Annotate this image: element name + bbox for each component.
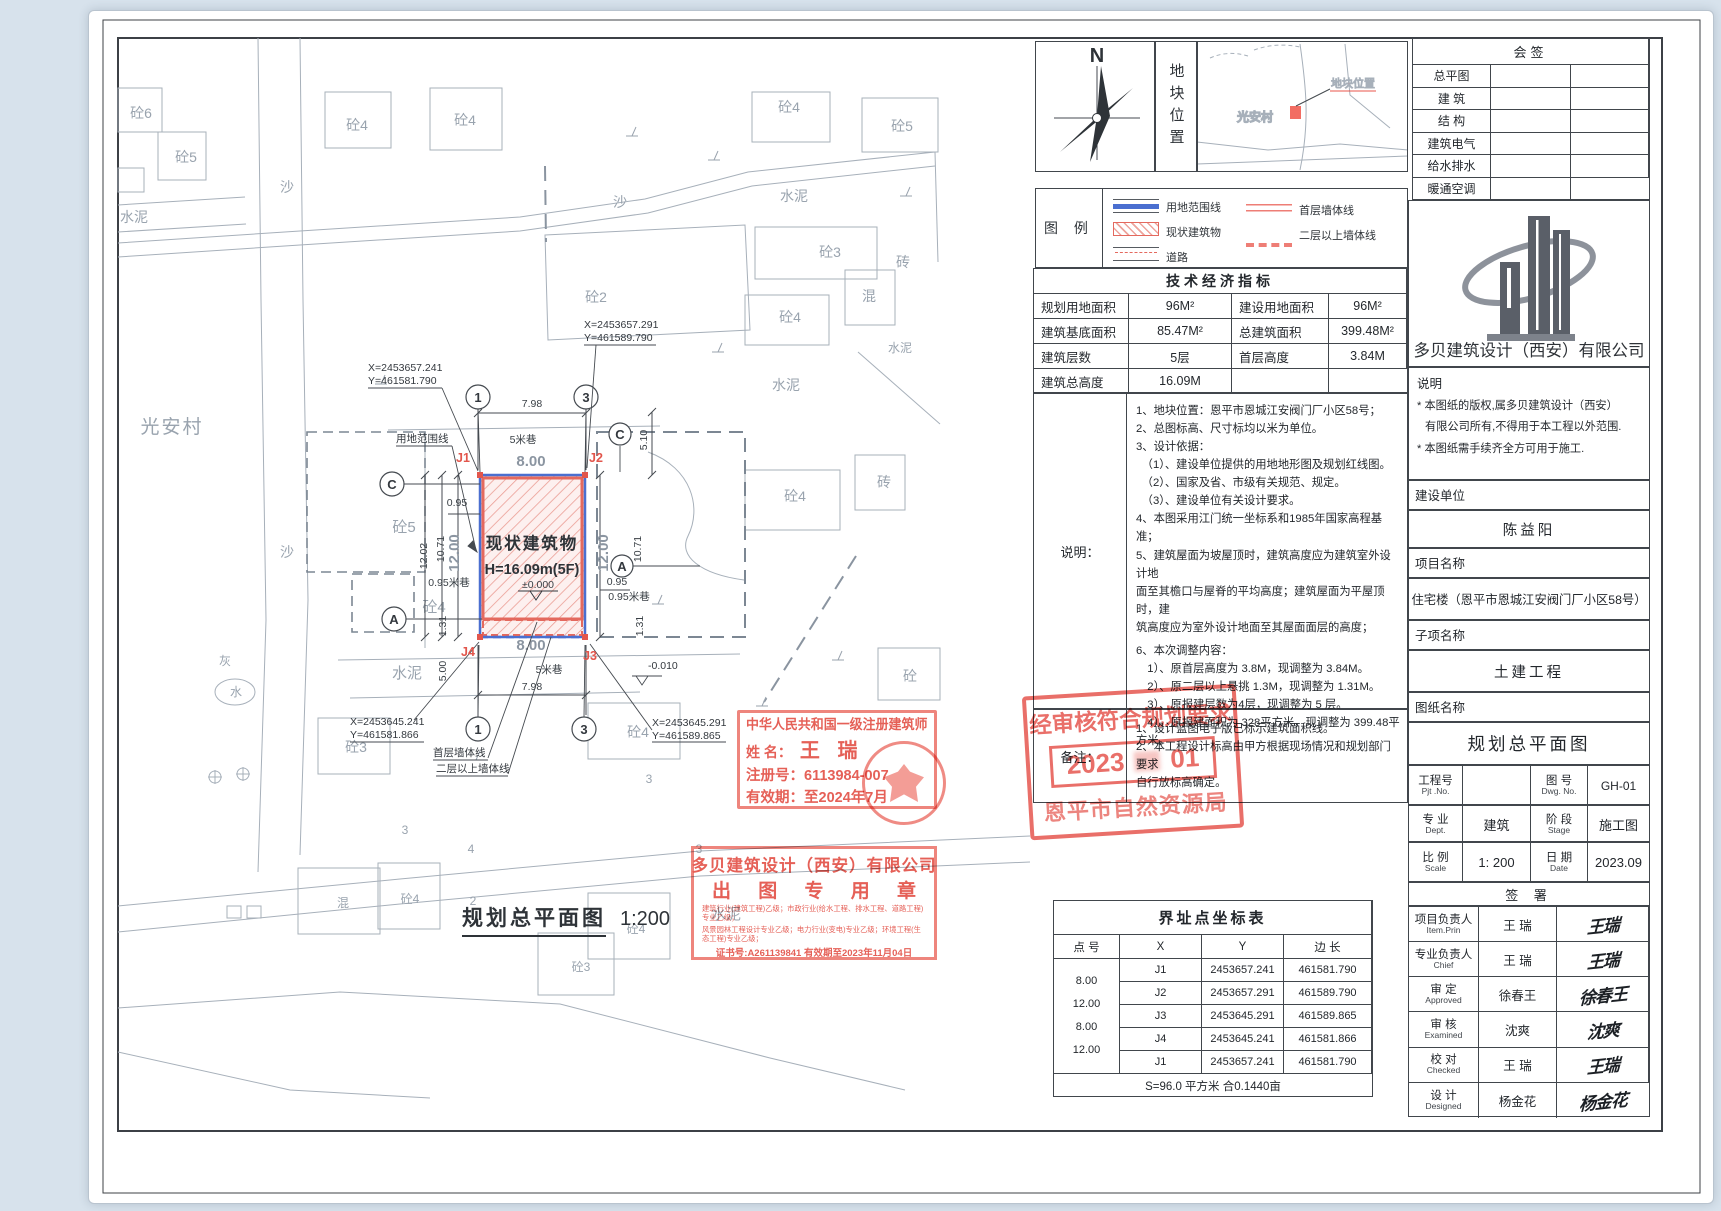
signoff-cell bbox=[1491, 133, 1571, 156]
stage-label: 阶 段 bbox=[1546, 814, 1572, 826]
point-j2: J2 bbox=[589, 451, 603, 465]
signer-name: 杨金花 bbox=[1479, 1083, 1557, 1118]
legend-item-first-wall: 首层墙体线 bbox=[1299, 202, 1354, 218]
indicators-table: 技术经济指标 规划用地面积 96M² 建设用地面积 96M² 建筑基底面积 85… bbox=[1033, 268, 1408, 393]
dim-500-left: 5.00 bbox=[437, 661, 449, 682]
context-label: 灰 bbox=[219, 654, 231, 668]
seal-qualification-line: 建筑行业(建筑工程)乙级；市政行业(给水工程、排水工程、道路工程)专业乙级； bbox=[696, 903, 932, 924]
context-label: 砖 bbox=[877, 474, 891, 490]
date-label-cell: 日 期Date bbox=[1531, 843, 1588, 882]
coord-y: 461581.790 bbox=[1284, 1051, 1372, 1074]
stage-label-cell: 阶 段Stage bbox=[1531, 806, 1588, 842]
coord-bl-y: Y=461581.866 bbox=[350, 729, 419, 741]
page-background: 砼6 砼5 水泥 沙 砼4 砼4 沙 砼4 砼5 水泥 砼3 砼2 砼4 混 砖… bbox=[0, 0, 1721, 1211]
signer-role-cell: 设 计Designed bbox=[1409, 1083, 1479, 1118]
legend-swatch-road bbox=[1113, 247, 1159, 261]
signer-role-cell: 项目负责人Item.Prin bbox=[1409, 907, 1479, 942]
context-label: 水 bbox=[230, 685, 242, 699]
signer-name: 沈爽 bbox=[1479, 1012, 1557, 1047]
note-line: 4、本图采用江门统一坐标系和1985年国家高程基准； bbox=[1136, 510, 1401, 546]
indicators-title: 技术经济指标 bbox=[1034, 269, 1407, 294]
seal-purpose: 出 图 专 用 章 bbox=[701, 876, 927, 903]
signer-signature-cell: 王瑞 bbox=[1557, 942, 1649, 977]
client-value: 陈益阳 bbox=[1408, 510, 1650, 548]
lane-label-top: 5米巷 bbox=[510, 433, 537, 446]
context-label: 4 bbox=[468, 842, 475, 856]
pjt-no-label-cell: 工程号Pjt .No. bbox=[1409, 766, 1463, 805]
indicator-label bbox=[1232, 369, 1329, 393]
date-label-en: Date bbox=[1550, 864, 1568, 873]
indicator-label: 规划用地面积 bbox=[1034, 294, 1129, 319]
note-line: 1、地块位置：恩平市恩城江安阀门厂小区58号； bbox=[1136, 402, 1401, 420]
axis-3-bottom: 3 bbox=[580, 722, 587, 737]
subproject-value: 土建工程 bbox=[1408, 650, 1650, 692]
callout-boundary: 用地范围线 bbox=[396, 432, 449, 445]
signature-scribble: 王瑞 bbox=[1586, 910, 1619, 939]
note-line: （2）、国家及省、市级有关规范、规定。 bbox=[1136, 474, 1401, 492]
scale-value: 1: 200 bbox=[1463, 843, 1531, 882]
dim-1071-right: 10.71 bbox=[632, 536, 644, 562]
axis-3-top: 3 bbox=[582, 390, 589, 405]
context-label: 沙 bbox=[613, 194, 627, 210]
legend-divider bbox=[1102, 189, 1103, 267]
signoff-row-label: 建筑电气 bbox=[1413, 133, 1491, 156]
legend-swatch-boundary bbox=[1113, 199, 1159, 213]
client-label: 建设单位 bbox=[1408, 480, 1650, 510]
context-label: 水泥 bbox=[780, 188, 808, 204]
signer-role-cell: 专业负责人Chief bbox=[1409, 942, 1479, 977]
dim-131-right: 1.31 bbox=[634, 616, 646, 637]
signer-role: 专业负责人 bbox=[1415, 949, 1473, 961]
axis-c-left: C bbox=[387, 477, 397, 492]
signature-scribble: 王瑞 bbox=[1586, 945, 1619, 974]
context-label-village: 光安村 bbox=[140, 416, 203, 438]
edge-length: 12.00 bbox=[1054, 1044, 1119, 1056]
coord-point: J4 bbox=[1120, 1028, 1202, 1051]
coord-br-y: Y=461589.865 bbox=[652, 730, 721, 742]
seal-certificate-no: 证书号:A261139841 有效期至2023年11月04日 bbox=[716, 945, 912, 959]
signer-name: 王 瑞 bbox=[1479, 942, 1557, 977]
coord-y: 461589.865 bbox=[1284, 1005, 1372, 1028]
coordinate-table: 界址点坐标表 点 号 X Y 边 长 J1 2453657.241 461581… bbox=[1053, 900, 1373, 1097]
building-level: ±0.000 bbox=[522, 579, 554, 591]
scale-label-en: Scale bbox=[1425, 864, 1446, 873]
indicator-value: 16.09M bbox=[1129, 369, 1232, 393]
signer-role-en: Designed bbox=[1426, 1102, 1462, 1111]
plot-existing-building: 现状建筑物 H=16.09m(5F) ±0.000 bbox=[477, 472, 588, 640]
signoff-cell bbox=[1491, 88, 1571, 111]
lane-095-left: 0.95米巷 bbox=[428, 576, 470, 589]
project-number-row: 工程号Pjt .No. 图 号Dwg. No. GH-01 bbox=[1408, 765, 1650, 805]
subproject-label: 子项名称 bbox=[1408, 620, 1650, 650]
pjt-no-label-en: Pjt .No. bbox=[1422, 787, 1450, 796]
note-line: 6、本次调整内容： bbox=[1136, 642, 1401, 660]
location-panel-title: 地块位置 bbox=[1166, 63, 1187, 151]
scale-label-cell: 比 例Scale bbox=[1409, 843, 1463, 882]
signer-role-cell: 审 定Approved bbox=[1409, 977, 1479, 1012]
context-label: 混 bbox=[337, 896, 349, 910]
signature-table: 项目负责人Item.Prin 王 瑞 王瑞 专业负责人Chief 王 瑞 王瑞 … bbox=[1408, 906, 1650, 1117]
context-label: 3 bbox=[646, 772, 653, 786]
legend-box: 图 例 用地范围线 现状建筑物 道路 首层墙体线 二层以上墙体线 bbox=[1035, 188, 1408, 268]
signoff-cell bbox=[1491, 110, 1571, 133]
note-line: 面至其檐口与屋脊的平均高度；建筑屋面为平屋顶时，建 bbox=[1136, 583, 1401, 619]
coord-tl-y: Y=461581.790 bbox=[368, 375, 437, 387]
planning-approval-stamp: 经审核符合规划要求 2023 01 恩平市自然资源局 bbox=[1022, 684, 1244, 841]
signoff-row-label: 暖通空调 bbox=[1413, 178, 1491, 201]
signoff-row-label: 给水排水 bbox=[1413, 155, 1491, 178]
coord-tl-x: X=2453657.241 bbox=[368, 362, 443, 374]
context-label: 砼4 bbox=[778, 99, 800, 115]
signoff-row-label: 总平图 bbox=[1413, 65, 1491, 88]
stage-value: 施工图 bbox=[1588, 806, 1649, 842]
point-j1: J1 bbox=[456, 451, 470, 465]
plan-title-block: 规划总平面图 1:200 bbox=[462, 902, 670, 937]
coord-point: J2 bbox=[1120, 982, 1202, 1005]
signature-scribble: 杨金花 bbox=[1579, 1085, 1628, 1115]
location-panel-title-box: 地块位置 bbox=[1155, 41, 1197, 172]
signer-role-en: Approved bbox=[1425, 996, 1461, 1005]
signer-signature-cell: 王瑞 bbox=[1557, 907, 1649, 942]
legend-swatch-upper-wall bbox=[1246, 239, 1292, 253]
col-header-x: X bbox=[1120, 935, 1202, 959]
axis-a-left: A bbox=[389, 612, 399, 627]
dim-798-bottom: 7.98 bbox=[522, 681, 543, 693]
indicator-value: 85.47M² bbox=[1129, 319, 1232, 344]
dept-label-cell: 专 业Dept. bbox=[1409, 806, 1463, 842]
coord-br-x: X=2453645.291 bbox=[652, 717, 727, 729]
dim-095-right: 0.95 bbox=[607, 576, 628, 588]
signer-signature-cell: 杨金花 bbox=[1557, 1083, 1649, 1118]
axis-1-bottom: 1 bbox=[474, 722, 481, 737]
axis-c-right: C bbox=[615, 427, 625, 442]
edge-length: 8.00 bbox=[1054, 1021, 1119, 1033]
copyright-box: 说明 * 本图纸的版权,属多贝建筑设计（西安） 有限公司所有,不得用于本工程以外… bbox=[1408, 367, 1650, 480]
coord-y: 461589.790 bbox=[1284, 982, 1372, 1005]
context-label: 水泥 bbox=[120, 209, 148, 225]
legend-item-existing-building: 现状建筑物 bbox=[1166, 224, 1221, 240]
signature-scribble: 王瑞 bbox=[1586, 1050, 1619, 1079]
context-label: 混 bbox=[862, 288, 876, 304]
dim-1200-left: 12.00 bbox=[446, 534, 463, 572]
context-label: 砼4 bbox=[346, 117, 368, 133]
context-label: 砼3 bbox=[819, 244, 841, 260]
architect-name-label: 姓 名： bbox=[746, 742, 792, 762]
approval-date-smudge bbox=[1134, 750, 1161, 772]
copyright-title: 说明 bbox=[1417, 373, 1641, 392]
signoff-cell bbox=[1491, 178, 1571, 201]
indicator-value: 96M² bbox=[1329, 294, 1407, 319]
drawing-name-label: 图纸名称 bbox=[1408, 692, 1650, 722]
plan-scale: 1:200 bbox=[620, 908, 670, 931]
signoff-row-label: 结 构 bbox=[1413, 110, 1491, 133]
coord-point: J1 bbox=[1120, 1051, 1202, 1074]
drawing-name-value: 规划总平面图 bbox=[1408, 722, 1650, 765]
signature-scribble: 沈爽 bbox=[1586, 1015, 1619, 1044]
round-seal bbox=[862, 741, 946, 825]
signoff-row-label: 建 筑 bbox=[1413, 88, 1491, 111]
copyright-line: * 本图纸的版权,属多贝建筑设计（西安） bbox=[1417, 396, 1641, 417]
signoff-cell bbox=[1491, 155, 1571, 178]
scale-row: 比 例Scale 1: 200 日 期Date 2023.09 bbox=[1408, 842, 1650, 882]
approval-date-box: 2023 01 bbox=[1049, 736, 1217, 788]
indicator-value: 5层 bbox=[1129, 344, 1232, 369]
copyright-line: 有限公司所有,不得用于本工程以外范围. bbox=[1417, 417, 1641, 438]
axis-1-top: 1 bbox=[474, 390, 481, 405]
dwg-no-label-cell: 图 号Dwg. No. bbox=[1531, 766, 1588, 805]
building-name: 现状建筑物 bbox=[486, 533, 579, 553]
context-label: 砼4 bbox=[454, 112, 476, 128]
coord-x: 2453645.291 bbox=[1202, 1005, 1284, 1028]
context-label: 沙 bbox=[280, 179, 294, 195]
building-height: H=16.09m(5F) bbox=[485, 562, 580, 578]
location-map-box bbox=[1197, 41, 1408, 172]
company-drawing-seal: 多贝建筑设计（西安）有限公司 出 图 专 用 章 建筑行业(建筑工程)乙级；市政… bbox=[691, 846, 937, 960]
project-label: 项目名称 bbox=[1408, 548, 1650, 578]
context-label: 沙 bbox=[280, 544, 294, 560]
context-label: 砼5 bbox=[392, 519, 415, 536]
notes-label: 说明： bbox=[1034, 394, 1126, 708]
approval-authority: 恩平市自然资源局 bbox=[1043, 785, 1229, 828]
legend-title: 图 例 bbox=[1036, 189, 1102, 267]
context-label: 砖 bbox=[896, 254, 910, 270]
context-label: 砼6 bbox=[130, 105, 152, 121]
indicator-label: 总建筑面积 bbox=[1232, 319, 1329, 344]
col-header-point: 点 号 bbox=[1054, 935, 1120, 959]
architect-stamp-title: 中华人民共和国一级注册建筑师 bbox=[746, 713, 921, 733]
coord-point: J3 bbox=[1120, 1005, 1202, 1028]
indicator-label: 首层高度 bbox=[1232, 344, 1329, 369]
coord-x: 2453657.241 bbox=[1202, 959, 1284, 982]
coord-x: 2453645.241 bbox=[1202, 1028, 1284, 1051]
legend-swatch-first-wall bbox=[1246, 201, 1292, 215]
date-value: 2023.09 bbox=[1588, 843, 1649, 882]
legend-item-upper-wall: 二层以上墙体线 bbox=[1299, 227, 1376, 243]
signer-name: 王 瑞 bbox=[1479, 907, 1557, 942]
context-label: 砼3 bbox=[345, 739, 367, 755]
context-label: 砼4 bbox=[401, 892, 420, 906]
dept-value: 建筑 bbox=[1463, 806, 1531, 842]
coord-y: 461581.866 bbox=[1284, 1028, 1372, 1051]
indicator-value: 399.48M² bbox=[1329, 319, 1407, 344]
context-label: 砼5 bbox=[175, 149, 197, 165]
seal-qualification-line: 风景园林工程设计专业乙级；电力行业(变电)专业乙级；环境工程(生态工程)专业乙级… bbox=[696, 924, 932, 945]
signer-role-en: Checked bbox=[1427, 1066, 1461, 1075]
legend-swatch-existing-building bbox=[1113, 222, 1159, 236]
context-label: 砼4 bbox=[784, 488, 806, 504]
copyright-line: * 本图纸需手续齐全方可用于施工. bbox=[1417, 439, 1641, 460]
signoff-title: 会签 bbox=[1413, 39, 1649, 65]
notes-divider bbox=[1126, 394, 1127, 708]
signer-signature-cell: 沈爽 bbox=[1557, 1012, 1649, 1047]
context-label: 砼2 bbox=[585, 289, 607, 305]
signature-scribble: 徐春王 bbox=[1578, 979, 1627, 1009]
dept-label-en: Dept. bbox=[1425, 826, 1445, 835]
signer-signature-cell: 王瑞 bbox=[1557, 1048, 1649, 1083]
signoff-cell bbox=[1571, 110, 1649, 133]
dim-800-top: 8.00 bbox=[516, 453, 545, 470]
note-line: （3）、建设单位有关设计要求。 bbox=[1136, 492, 1401, 510]
signer-role-cell: 审 核Examined bbox=[1409, 1012, 1479, 1047]
note-line: 2、总图标高、尺寸标均以米为单位。 bbox=[1136, 420, 1401, 438]
edge-length: 12.00 bbox=[1054, 998, 1119, 1010]
signoff-cell bbox=[1571, 88, 1649, 111]
dim-1202-left: 12.02 bbox=[418, 543, 430, 569]
dwg-no-label-en: Dwg. No. bbox=[1542, 787, 1577, 796]
dept-row: 专 业Dept. 建筑 阶 段Stage 施工图 bbox=[1408, 805, 1650, 842]
dim-798-top: 7.98 bbox=[522, 398, 543, 410]
coordinate-table-footer: S=96.0 平方米 合0.1440亩 bbox=[1054, 1074, 1372, 1097]
project-value: 住宅楼（恩平市恩城江安阀门厂小区58号） bbox=[1408, 578, 1650, 620]
dept-label: 专 业 bbox=[1422, 814, 1448, 826]
note-line: 1）、原首层高度为 3.8M，现调整为 3.84M。 bbox=[1136, 660, 1401, 678]
signoff-cell bbox=[1571, 65, 1649, 88]
approval-text: 经审核符合规划要求 bbox=[1028, 696, 1232, 740]
signoff-cell bbox=[1491, 65, 1571, 88]
indicator-label: 建筑层数 bbox=[1034, 344, 1129, 369]
context-label: 砼4 bbox=[627, 724, 649, 740]
legend-item-road: 道路 bbox=[1166, 249, 1188, 265]
approval-date-day: 01 bbox=[1169, 742, 1200, 775]
context-label: 水泥 bbox=[772, 377, 800, 393]
signer-role-cell: 校 对Checked bbox=[1409, 1048, 1479, 1083]
callout-first-wall: 首层墙体线 bbox=[433, 746, 486, 759]
context-label: 砼4 bbox=[779, 309, 801, 325]
coordinate-table-title: 界址点坐标表 bbox=[1054, 901, 1372, 935]
north-arrow-box bbox=[1035, 41, 1155, 172]
dwg-no-value: GH-01 bbox=[1588, 766, 1649, 805]
notes-box: 说明： 1、地块位置：恩平市恩城江安阀门厂小区58号； 2、总图标高、尺寸标均以… bbox=[1033, 393, 1408, 709]
note-line: 5、建筑屋面为坡屋顶时，建筑高度应为建筑室外设计地 bbox=[1136, 547, 1401, 583]
signoff-table: 会签 总平图 建 筑 结 构 建筑电气 给水排水 暖通空调 bbox=[1412, 38, 1650, 200]
legend-item-boundary: 用地范围线 bbox=[1166, 199, 1221, 215]
signer-name: 徐春王 bbox=[1479, 977, 1557, 1012]
seal-company-name: 多贝建筑设计（西安）有限公司 bbox=[692, 852, 937, 876]
note-line: （1）、建设单位提供的用地地形图及规划红线图。 bbox=[1136, 456, 1401, 474]
context-label: 水泥 bbox=[888, 341, 912, 355]
approval-date-year: 2023 bbox=[1066, 747, 1126, 781]
indicator-value: 96M² bbox=[1129, 294, 1232, 319]
col-header-length: 边 长 bbox=[1284, 935, 1372, 959]
dim-510-right: 5.10 bbox=[638, 430, 650, 451]
indicator-value bbox=[1329, 369, 1407, 393]
note-line: 3、设计依据： bbox=[1136, 438, 1401, 456]
indicator-label: 建设用地面积 bbox=[1232, 294, 1329, 319]
signoff-cell bbox=[1571, 155, 1649, 178]
edge-length-column: 8.00 12.00 8.00 12.00 bbox=[1054, 959, 1120, 1074]
stage-label-en: Stage bbox=[1548, 826, 1570, 835]
signoff-cell bbox=[1571, 178, 1649, 201]
company-logo-box: 多贝建筑设计（西安）有限公司 bbox=[1408, 200, 1650, 367]
coord-x: 2453657.241 bbox=[1202, 1051, 1284, 1074]
upper-wall-swatch-line bbox=[1246, 243, 1292, 247]
seal-emblem-icon bbox=[884, 764, 924, 802]
callout-upper-wall: 二层以上墙体线 bbox=[436, 762, 510, 775]
col-header-y: Y bbox=[1202, 935, 1284, 959]
lane-095-right: 0.95米巷 bbox=[608, 590, 650, 603]
signature-section-title: 签 署 bbox=[1408, 882, 1650, 906]
point-j4: J4 bbox=[461, 645, 475, 659]
coord-tr-x: X=2453657.291 bbox=[584, 319, 659, 331]
context-label: 砼 bbox=[903, 668, 917, 684]
context-label: 3 bbox=[402, 823, 409, 837]
architect-name: 王 瑞 bbox=[800, 734, 864, 763]
context-dashed bbox=[545, 166, 856, 702]
signer-role: 项目负责人 bbox=[1415, 914, 1473, 926]
edge-length: 8.00 bbox=[1054, 975, 1119, 987]
context-label: 水泥 bbox=[392, 665, 422, 682]
road-swatch-line bbox=[1115, 252, 1157, 253]
plan-title: 规划总平面图 bbox=[462, 902, 606, 937]
context-label: 砼3 bbox=[572, 960, 591, 974]
context-label: 砼5 bbox=[891, 118, 913, 134]
axis-a-right: A bbox=[617, 559, 627, 574]
coord-tr-y: Y=461589.790 bbox=[584, 332, 653, 344]
signer-role-en: Item.Prin bbox=[1426, 926, 1460, 935]
signer-role-en: Examined bbox=[1425, 1031, 1463, 1040]
indicator-label: 建筑基底面积 bbox=[1034, 319, 1129, 344]
signer-signature-cell: 徐春王 bbox=[1557, 977, 1649, 1012]
signer-name: 王 瑞 bbox=[1479, 1048, 1557, 1083]
indicator-label: 建筑总高度 bbox=[1034, 369, 1129, 393]
coord-bl-x: X=2453645.241 bbox=[350, 716, 425, 728]
level-low-label: -0.010 bbox=[648, 660, 678, 672]
company-name: 多贝建筑设计（西安）有限公司 bbox=[1409, 337, 1649, 361]
building-hatch bbox=[481, 476, 584, 636]
coord-x: 2453657.291 bbox=[1202, 982, 1284, 1005]
coord-y: 461581.790 bbox=[1284, 959, 1372, 982]
signer-role-en: Chief bbox=[1434, 961, 1454, 970]
pjt-no-value bbox=[1463, 766, 1531, 805]
dim-1200-right: 12.00 bbox=[595, 534, 612, 572]
signoff-cell bbox=[1571, 133, 1649, 156]
coord-point: J1 bbox=[1120, 959, 1202, 982]
indicator-value: 3.84M bbox=[1329, 344, 1407, 369]
point-j3: J3 bbox=[583, 649, 597, 663]
note-line: 筑高度应为室外设计地面至其屋面面层的高度； bbox=[1136, 619, 1401, 637]
